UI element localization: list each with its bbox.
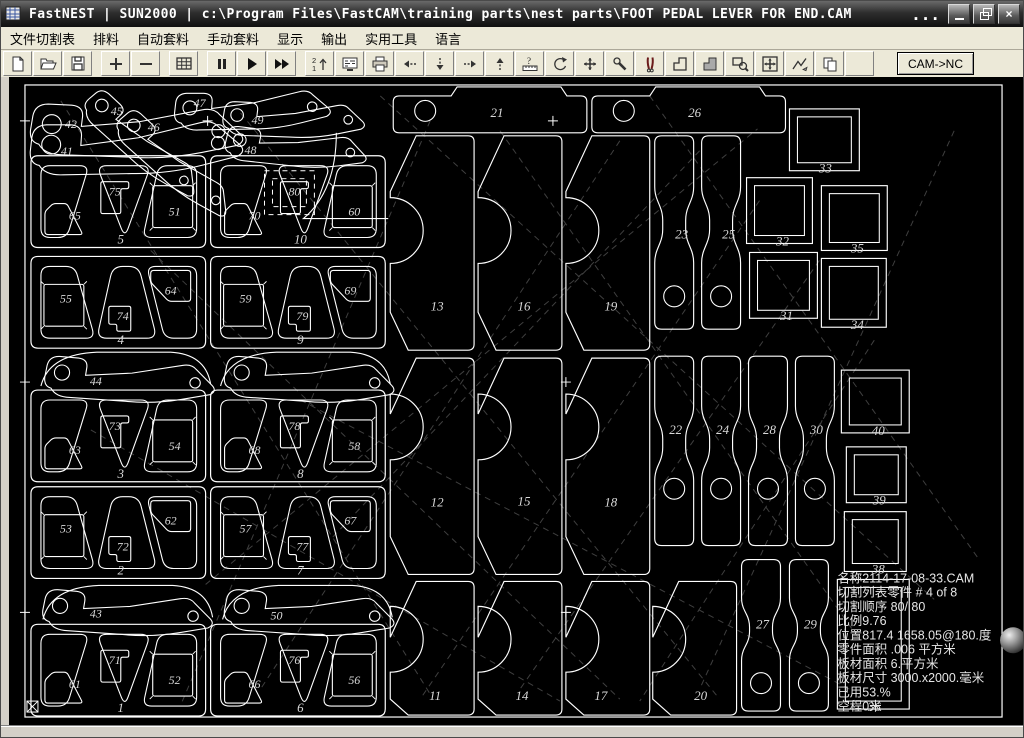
svg-text:18: 18: [604, 495, 617, 510]
sheet-grid-icon: [175, 55, 193, 73]
nest-part-30[interactable]: 30: [795, 356, 834, 545]
sequence-icon: 21: [311, 55, 329, 73]
svg-text:11: 11: [429, 688, 441, 703]
nest-part-12[interactable]: 12: [390, 358, 474, 574]
svg-text:39: 39: [872, 493, 886, 508]
svg-text:46: 46: [148, 120, 160, 134]
nest-part-20[interactable]: 20: [653, 581, 737, 715]
svg-text:63: 63: [69, 443, 81, 457]
rotate-icon: [551, 55, 569, 73]
app-icon: [5, 6, 23, 22]
nest-part-lever-49[interactable]: [223, 102, 365, 138]
nest-part-39[interactable]: 39: [846, 447, 906, 508]
corner-loop-filled-button[interactable]: [695, 51, 724, 76]
svg-text:40: 40: [872, 423, 885, 438]
nest-part-lever-43[interactable]: [42, 589, 213, 638]
svg-text:20: 20: [694, 688, 707, 703]
nest-plate-8[interactable]: 6878588: [211, 390, 386, 482]
window-title: FastNEST | SUN2000 | c:\Program Files\Fa…: [29, 7, 903, 22]
move-down-icon: [431, 55, 449, 73]
svg-text:7: 7: [297, 562, 304, 577]
pause-icon: [213, 55, 231, 73]
svg-text:53: 53: [60, 522, 72, 536]
nest-part-38[interactable]: 38: [844, 512, 906, 577]
svg-text:56: 56: [348, 673, 360, 687]
print-button[interactable]: [365, 51, 394, 76]
nc-code-button[interactable]: [335, 51, 364, 76]
svg-text:75: 75: [109, 185, 121, 199]
svg-text:8: 8: [297, 466, 304, 481]
svg-text:14: 14: [516, 688, 529, 703]
menu-item-5[interactable]: 输出: [312, 27, 356, 50]
nest-part-33[interactable]: 33: [789, 109, 859, 176]
zoom-out-button[interactable]: [131, 51, 160, 76]
svg-text:64: 64: [165, 283, 177, 297]
nest-plate-6[interactable]: 6676566: [211, 624, 386, 716]
svg-text:66: 66: [249, 677, 261, 691]
svg-text:62: 62: [165, 514, 177, 528]
title-bar[interactable]: FastNEST | SUN2000 | c:\Program Files\Fa…: [1, 1, 1023, 27]
svg-text:58: 58: [348, 439, 360, 453]
menu-item-6[interactable]: 实用工具: [356, 27, 426, 50]
zoom-window-icon: [731, 55, 749, 73]
svg-text:50: 50: [270, 608, 282, 622]
nest-part-17[interactable]: 17: [566, 581, 650, 715]
svg-text:54: 54: [169, 439, 181, 453]
svg-text:79: 79: [296, 309, 308, 323]
nest-plate-4[interactable]: 5574644: [31, 256, 206, 348]
svg-text:32: 32: [775, 233, 789, 248]
svg-text:24: 24: [716, 422, 729, 437]
svg-text:12: 12: [431, 495, 444, 510]
nest-part-13[interactable]: 13: [390, 136, 474, 350]
nest-part-32[interactable]: 32: [747, 178, 813, 249]
svg-text:44: 44: [90, 374, 102, 388]
settings-icon: [611, 55, 629, 73]
profile-icon: [791, 55, 809, 73]
svg-text:68: 68: [249, 443, 261, 457]
svg-text:19: 19: [604, 298, 617, 313]
close-button[interactable]: ×: [998, 4, 1020, 24]
align-icon: [581, 55, 599, 73]
svg-text:1: 1: [312, 64, 316, 73]
svg-text:切割列表零件 # 4 of 8: 切割列表零件 # 4 of 8: [837, 585, 957, 600]
svg-text:5: 5: [118, 231, 125, 246]
move-up-button[interactable]: [485, 51, 514, 76]
svg-text:77: 77: [296, 540, 309, 554]
open-file-button[interactable]: [33, 51, 62, 76]
nest-part-19[interactable]: 19: [566, 136, 650, 350]
cut-icon: [641, 55, 659, 73]
pause-button[interactable]: [207, 51, 236, 76]
svg-text:28: 28: [763, 422, 776, 437]
corner-loop-icon: [671, 55, 689, 73]
nest-part-lever-44[interactable]: [44, 356, 215, 405]
svg-text:3: 3: [117, 466, 125, 481]
title-overflow: ...: [911, 5, 940, 24]
copy-sheet-icon: [821, 55, 839, 73]
svg-text:65: 65: [69, 209, 81, 223]
move-up-icon: [491, 55, 509, 73]
nest-part-40[interactable]: 40: [841, 370, 909, 438]
nest-plate-1[interactable]: 6171521: [31, 624, 206, 716]
svg-text:板材面积 6.平方米: 板材面积 6.平方米: [837, 656, 939, 671]
svg-text:45: 45: [111, 104, 123, 118]
nest-part-16[interactable]: 16: [478, 136, 562, 350]
blank-button[interactable]: [845, 51, 874, 76]
nest-part-11[interactable]: 11: [390, 581, 474, 715]
svg-text:31: 31: [779, 308, 793, 323]
ball-decoration: [1000, 627, 1023, 653]
svg-text:76: 76: [288, 653, 300, 667]
svg-text:2: 2: [118, 562, 125, 577]
nest-part-23[interactable]: 23: [655, 136, 694, 329]
menu-item-3[interactable]: 手动套料: [198, 27, 268, 50]
nest-plate-7[interactable]: 5777677: [211, 487, 386, 579]
menu-item-1[interactable]: 排料: [84, 27, 128, 50]
measure-button[interactable]: ?: [515, 51, 544, 76]
svg-text:17: 17: [594, 688, 607, 703]
svg-text:比例9.76: 比例9.76: [837, 614, 886, 628]
svg-text:33: 33: [818, 161, 832, 176]
svg-text:71: 71: [109, 653, 121, 667]
fit-view-button[interactable]: [755, 51, 784, 76]
profile-button[interactable]: [785, 51, 814, 76]
svg-text:61: 61: [69, 677, 81, 691]
svg-text:49: 49: [252, 113, 264, 127]
fast-nest-icon: [273, 55, 291, 73]
svg-text:72: 72: [117, 540, 129, 554]
move-right-icon: [461, 55, 479, 73]
svg-text:25: 25: [722, 227, 735, 242]
svg-text:6: 6: [297, 700, 304, 715]
corner-loop-button[interactable]: [665, 51, 694, 76]
svg-text:80: 80: [288, 185, 300, 199]
svg-text:4: 4: [118, 332, 125, 347]
new-file-icon: [9, 55, 27, 73]
svg-text:13: 13: [431, 298, 444, 313]
svg-text:1: 1: [118, 700, 124, 715]
nest-plate-2[interactable]: 5372622: [31, 487, 206, 579]
svg-text:已用53.%: 已用53.%: [837, 685, 890, 699]
start-nest-button[interactable]: [237, 51, 266, 76]
nest-part-lever-45[interactable]: [76, 86, 207, 204]
nest-part-35[interactable]: 35: [821, 186, 887, 256]
svg-text:切割顺序 80/ 80: 切割顺序 80/ 80: [837, 599, 925, 614]
svg-text:位置817.4 1658.05@180.度: 位置817.4 1658.05@180.度: [837, 627, 991, 642]
fast-nest-button[interactable]: [267, 51, 296, 76]
svg-text:57: 57: [240, 522, 253, 536]
svg-text:15: 15: [518, 494, 531, 509]
nest-part-31[interactable]: 31: [750, 252, 818, 323]
fastnest-window: FastNEST | SUN2000 | c:\Program Files\Fa…: [0, 0, 1024, 738]
move-left-button[interactable]: [395, 51, 424, 76]
nest-part-34[interactable]: 34: [821, 258, 886, 332]
start-nest-icon: [243, 55, 261, 73]
svg-text:空程0米: 空程0米: [837, 699, 882, 714]
nest-part-15[interactable]: 15: [478, 358, 562, 574]
svg-text:21: 21: [491, 105, 504, 120]
zoom-in-icon: [107, 55, 125, 73]
svg-text:?: ?: [527, 56, 531, 66]
menu-item-4[interactable]: 显示: [268, 27, 312, 50]
zoom-in-button[interactable]: [101, 51, 130, 76]
svg-text:16: 16: [518, 298, 531, 313]
svg-text:板材尺寸 3000.x2000.毫米: 板材尺寸 3000.x2000.毫米: [837, 670, 984, 685]
nest-part-22[interactable]: 22: [655, 356, 694, 545]
svg-text:34: 34: [850, 317, 864, 332]
new-file-button[interactable]: [3, 51, 32, 76]
move-left-icon: [401, 55, 419, 73]
nc-code-icon: [341, 55, 359, 73]
sequence-button[interactable]: 21: [305, 51, 334, 76]
svg-text:零件面积 .006 平方米: 零件面积 .006 平方米: [837, 642, 956, 657]
nest-part-21[interactable]: 21: [393, 87, 587, 133]
move-down-button[interactable]: [425, 51, 454, 76]
svg-text:41: 41: [61, 144, 73, 158]
svg-text:9: 9: [297, 332, 304, 347]
nest-part-25[interactable]: 25: [702, 136, 741, 329]
svg-text:78: 78: [288, 419, 300, 433]
nest-part-lever[interactable]: [224, 356, 395, 405]
align-button[interactable]: [575, 51, 604, 76]
print-icon: [371, 55, 389, 73]
zoom-window-button[interactable]: [725, 51, 754, 76]
svg-text:70: 70: [249, 209, 261, 223]
svg-text:27: 27: [756, 616, 769, 631]
svg-text:29: 29: [804, 616, 817, 631]
rotate-button[interactable]: [545, 51, 574, 76]
nest-part-29[interactable]: 29: [789, 560, 828, 712]
svg-text:48: 48: [245, 143, 257, 157]
svg-text:55: 55: [60, 291, 72, 305]
open-file-icon: [39, 55, 57, 73]
nest-part-24[interactable]: 24: [702, 356, 741, 545]
minimize-button[interactable]: [948, 4, 970, 24]
svg-text:23: 23: [675, 227, 688, 242]
svg-text:42: 42: [65, 117, 77, 131]
save-button[interactable]: [63, 51, 92, 76]
svg-text:43: 43: [90, 606, 102, 620]
svg-text:10: 10: [294, 231, 307, 246]
blank-icon: [851, 55, 869, 73]
svg-text:52: 52: [169, 673, 181, 687]
zoom-out-icon: [137, 55, 155, 73]
menu-item-0[interactable]: 文件切割表: [1, 27, 84, 50]
measure-icon: ?: [521, 55, 539, 73]
corner-loop-filled-icon: [701, 55, 719, 73]
svg-text:67: 67: [344, 514, 357, 528]
sheet-grid-button[interactable]: [169, 51, 198, 76]
svg-text:名称2114-17-08-33.CAM: 名称2114-17-08-33.CAM: [837, 570, 974, 585]
svg-text:73: 73: [109, 419, 121, 433]
nest-plate-9[interactable]: 5979699: [211, 256, 386, 348]
svg-text:74: 74: [117, 309, 129, 323]
cam-to-nc-button[interactable]: CAM->NC: [897, 52, 974, 75]
svg-text:30: 30: [809, 422, 823, 437]
menu-item-7[interactable]: 语言: [426, 27, 470, 50]
restore-button[interactable]: [973, 4, 995, 24]
svg-text:35: 35: [850, 240, 864, 255]
svg-text:22: 22: [669, 422, 682, 437]
menu-item-2[interactable]: 自动套料: [128, 27, 198, 50]
nest-plate-3[interactable]: 6373543: [31, 390, 206, 482]
nest-info-text: 名称2114-17-08-33.CAM切割列表零件 # 4 of 8切割顺序 8…: [837, 570, 991, 713]
nest-plate-10[interactable]: 70806010: [211, 156, 386, 248]
nest-canvas[interactable]: 6575515708060105574644597969963735436878…: [9, 77, 1023, 727]
svg-text:51: 51: [169, 205, 181, 219]
status-bar: [1, 726, 1023, 737]
svg-text:60: 60: [348, 205, 360, 219]
menu-bar: 文件切割表排料自动套料手动套料显示输出实用工具语言: [1, 27, 1023, 50]
cut-button[interactable]: [635, 51, 664, 76]
svg-text:26: 26: [688, 105, 701, 120]
settings-button[interactable]: [605, 51, 634, 76]
fit-view-icon: [761, 55, 779, 73]
toolbar: 21?CAM->NC: [1, 50, 1023, 77]
copy-sheet-button[interactable]: [815, 51, 844, 76]
nest-part-28[interactable]: 28: [749, 356, 788, 545]
svg-text:69: 69: [344, 283, 356, 297]
svg-text:59: 59: [240, 291, 252, 305]
move-right-button[interactable]: [455, 51, 484, 76]
save-icon: [69, 55, 87, 73]
svg-text:47: 47: [194, 96, 207, 110]
nest-part-26[interactable]: 26: [592, 87, 786, 133]
